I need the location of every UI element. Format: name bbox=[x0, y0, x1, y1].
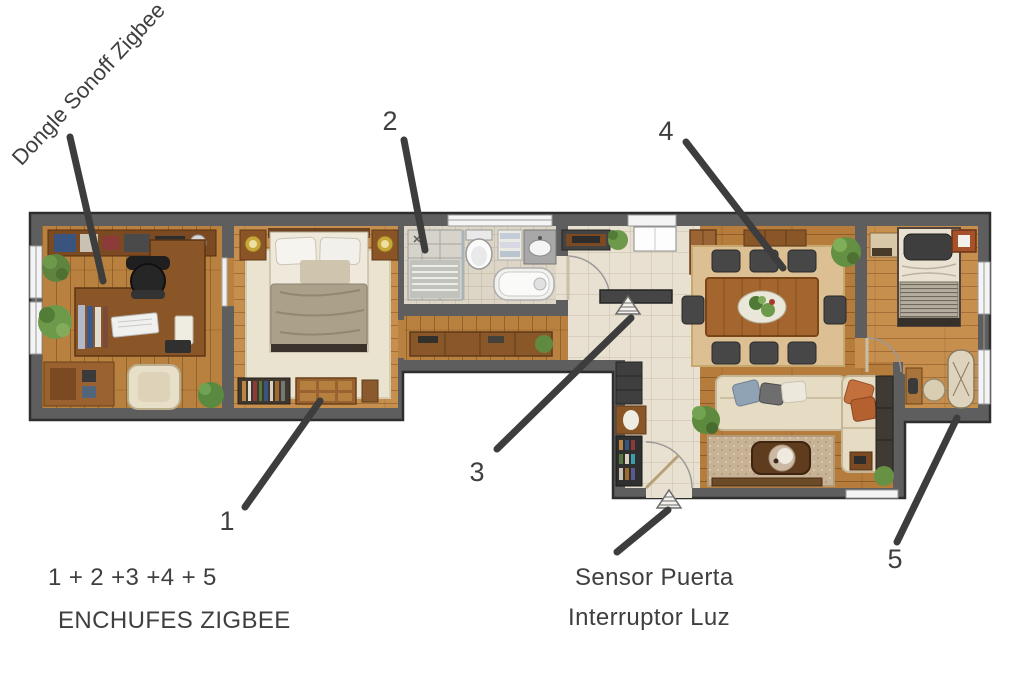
zigbee-plugs-title: ENCHUFES ZIGBEE bbox=[58, 607, 291, 635]
sensor-leader-line bbox=[617, 510, 668, 552]
light-switch-label: Interruptor Luz bbox=[568, 604, 730, 632]
plug-marker-4: 4 bbox=[650, 116, 682, 147]
plug-sum-label: 1 + 2 +3 +4 + 5 bbox=[48, 564, 217, 592]
door-sensor-label: Sensor Puerta bbox=[575, 564, 734, 592]
corridor bbox=[410, 332, 553, 356]
plug-marker-2: 2 bbox=[374, 106, 406, 137]
bedroom-1 bbox=[222, 228, 398, 404]
screenshot-canvas: Dongle Sonoff Zigbee 1 2 3 4 5 1 + 2 +3 … bbox=[0, 0, 1024, 683]
plug-marker-1: 1 bbox=[211, 506, 243, 537]
plug-marker-5: 5 bbox=[879, 544, 911, 575]
plug-marker-3: 3 bbox=[461, 457, 493, 488]
